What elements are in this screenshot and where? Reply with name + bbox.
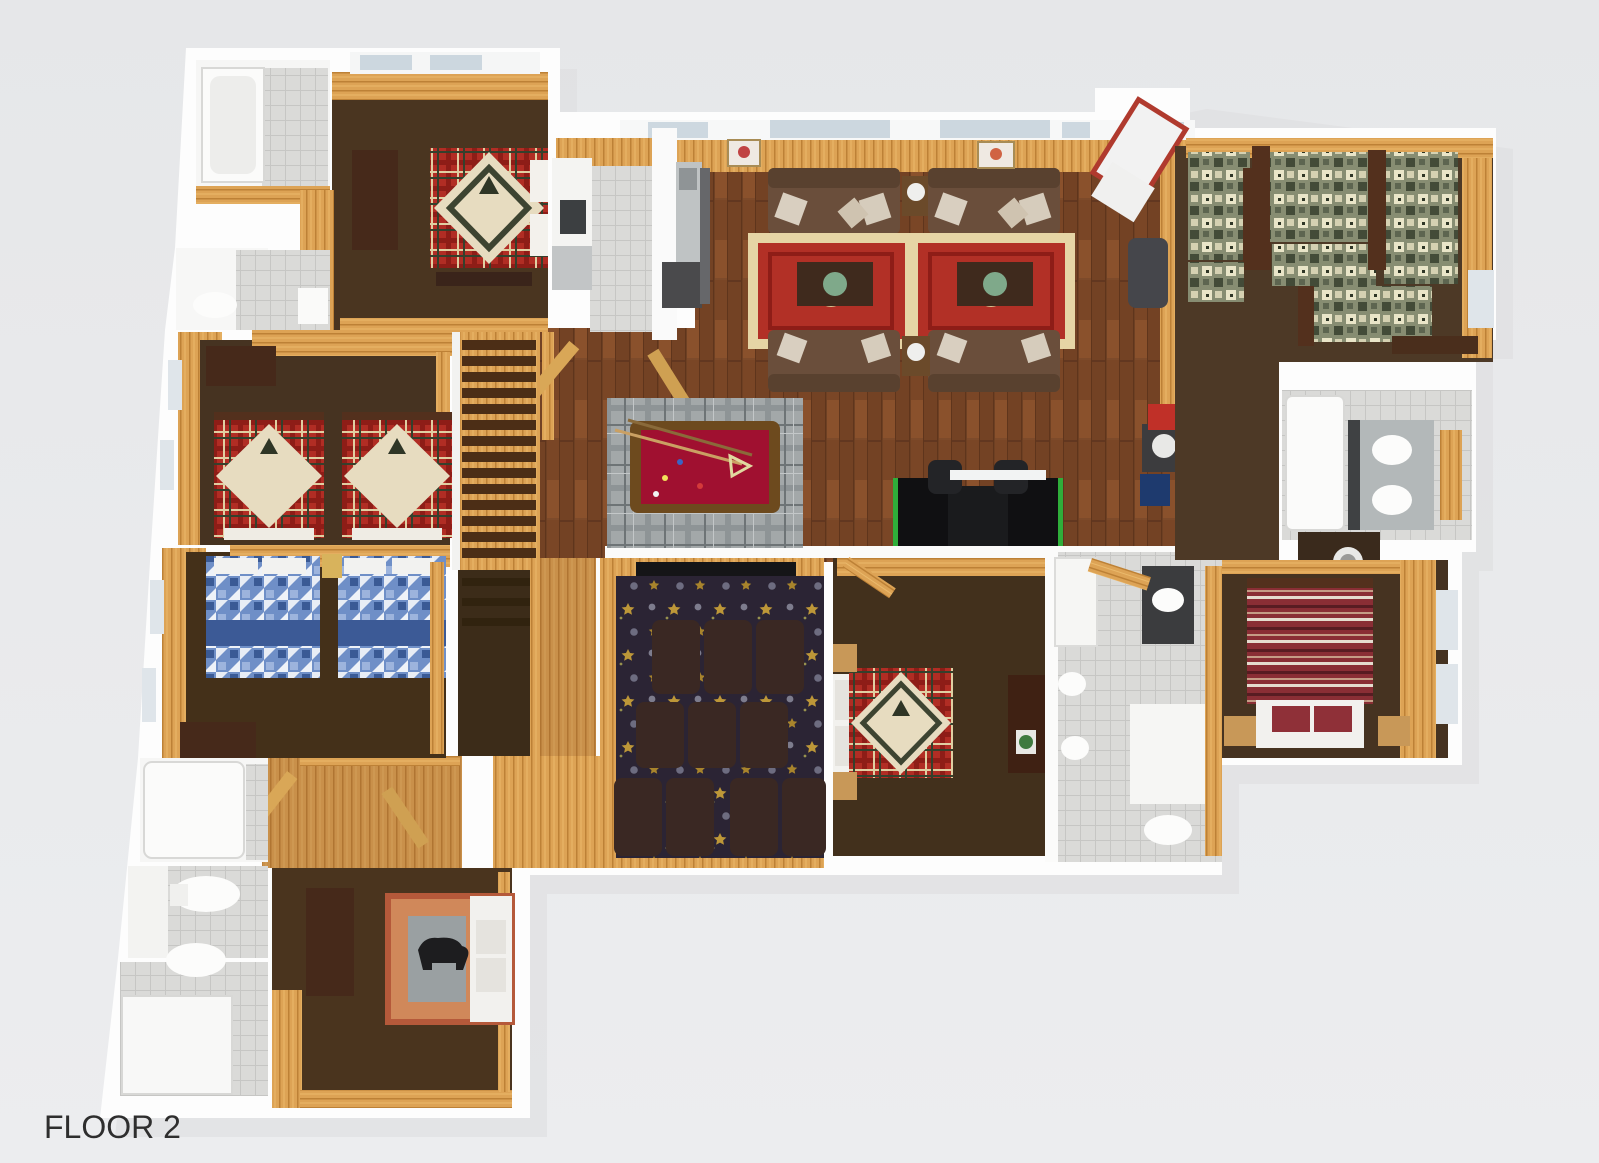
svg-text:FLOOR 2: FLOOR 2 [44,1109,181,1145]
